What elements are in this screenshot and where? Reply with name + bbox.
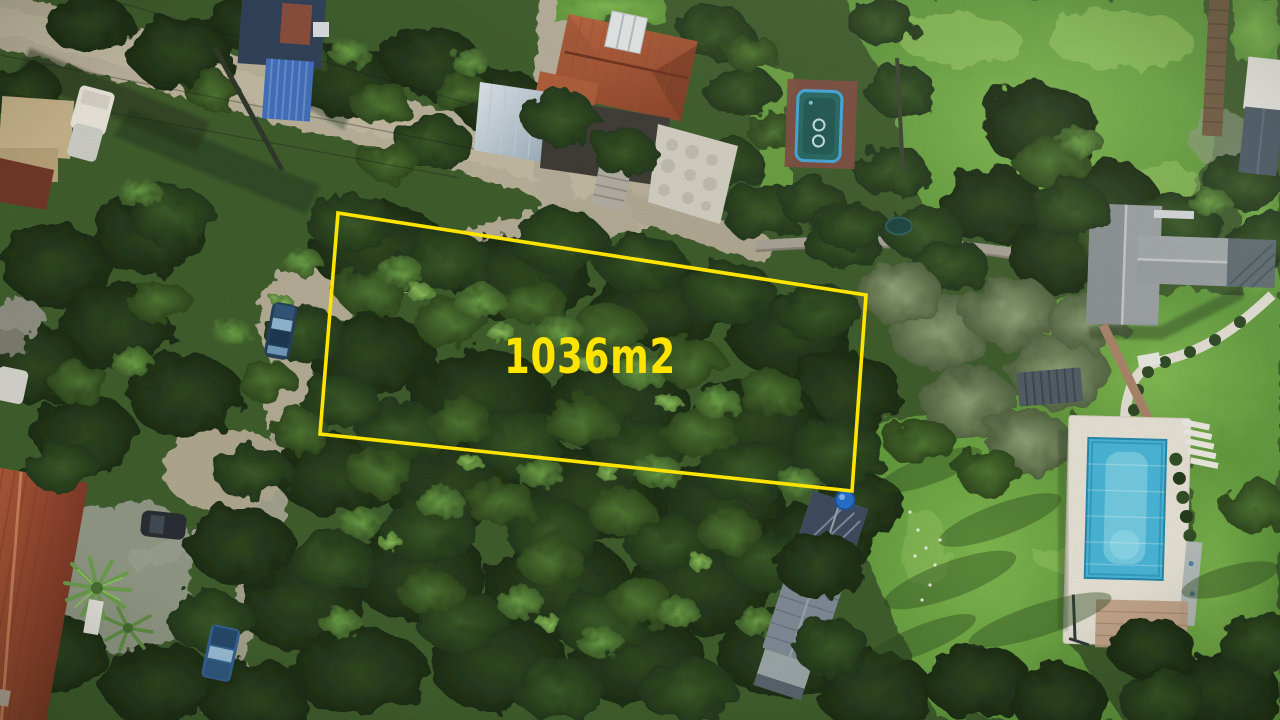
area-label: 1036m2 (504, 329, 676, 385)
scene-svg: 1036m2 (0, 0, 1280, 720)
aerial-photo: 1036m2 (0, 0, 1280, 720)
